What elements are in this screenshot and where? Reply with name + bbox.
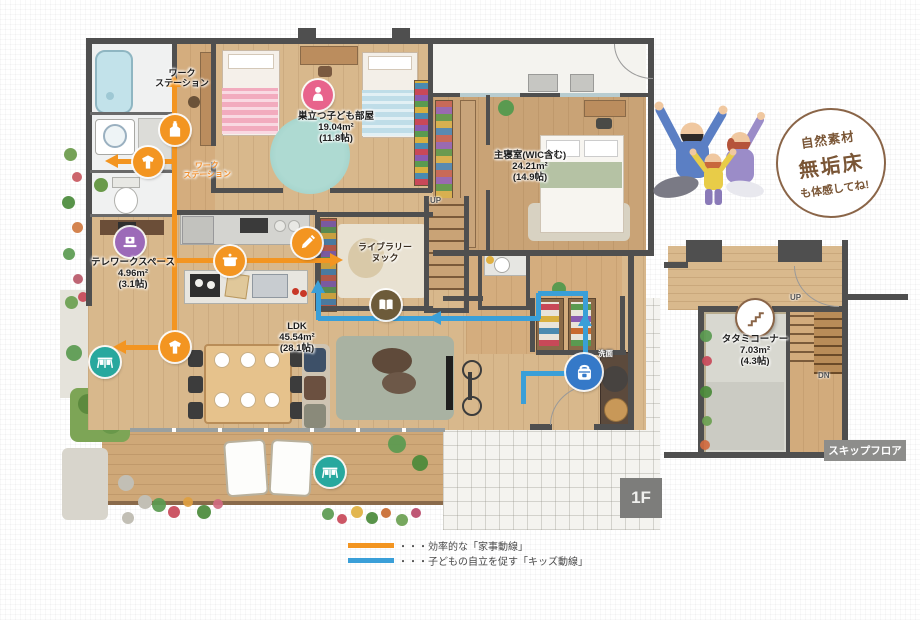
- stairs-up-label: UP: [430, 196, 441, 205]
- master-plant: [498, 100, 514, 116]
- workstation-label: ワーク ステーション: [142, 68, 222, 88]
- flower: [366, 512, 378, 524]
- legend-house-label: ・・・効率的な「家事動線」: [398, 538, 528, 553]
- kids-chair: [318, 66, 332, 77]
- skip-wall-stub: [664, 452, 700, 458]
- skip-plant: [700, 440, 710, 450]
- wall-wic: [486, 190, 490, 252]
- child-leg: [705, 189, 713, 205]
- skip-wall-top: [698, 306, 738, 312]
- skip-floor-tag: スキップフロア: [824, 440, 906, 461]
- drying-table-icon: [90, 347, 120, 377]
- cubby-items: [539, 302, 559, 346]
- plant: [72, 222, 83, 233]
- plant: [66, 345, 82, 361]
- workstation-label-line1: ワーク: [142, 68, 222, 78]
- plant: [63, 248, 75, 260]
- wall-kids-east: [428, 44, 433, 192]
- floorplan-canvas: ワーク ステーション ワーク ステーション 巣立つ子ども部屋 19.04m² (…: [0, 0, 920, 620]
- dad-arm: [660, 110, 680, 148]
- telework-label: テレワークスペース 4.96m² (3.1帖): [83, 257, 183, 290]
- kids-route-seg: [538, 291, 588, 296]
- telework-jo: (3.1帖): [83, 279, 183, 290]
- plant: [64, 148, 77, 161]
- tatami-corner-name: タタミコーナー: [705, 334, 805, 345]
- pebble-bed: [62, 448, 108, 520]
- kids-route-arrow-up: [578, 313, 592, 326]
- child-icon: [303, 80, 333, 110]
- wall-tv: [446, 356, 453, 410]
- skip-wall-stub: [686, 240, 722, 262]
- plant: [72, 172, 82, 182]
- sliding-door-line: [130, 428, 445, 432]
- wall-bottom-right: [530, 424, 552, 430]
- plant: [62, 196, 75, 209]
- stepping-stone: [118, 475, 134, 491]
- master-chair: [596, 118, 612, 129]
- kids-bed-duvet-pink: [222, 88, 278, 134]
- stepping-stone: [138, 495, 152, 509]
- wall-washbasin: [478, 250, 482, 310]
- legend-kids-swatch: [348, 558, 394, 563]
- kids-room-label: 巣立つ子ども部屋 19.04m² (11.8帖): [286, 111, 386, 144]
- skip-up-label: UP: [790, 293, 801, 302]
- wall-cubby: [530, 298, 535, 352]
- wall-cubby: [620, 296, 625, 354]
- flower: [183, 497, 193, 507]
- kids-room-area: 19.04m²: [286, 122, 386, 133]
- sofa-cushion: [304, 404, 326, 428]
- dining-chair: [188, 376, 203, 393]
- coffee-table: [372, 348, 412, 374]
- skip-tatami-mat: [706, 382, 784, 450]
- school-bag-icon: [566, 354, 602, 390]
- ac-unit: [570, 74, 594, 92]
- master-desk: [584, 100, 626, 117]
- bicycle-frame: [468, 372, 472, 400]
- bicycle-wheel: [462, 360, 482, 380]
- house-route-arrow-left: [105, 154, 118, 168]
- skip-plant: [700, 386, 712, 398]
- wall-stairs: [464, 196, 469, 312]
- telework-area: 4.96m²: [83, 268, 183, 279]
- skip-wall-stub: [664, 262, 688, 268]
- kids-route-arrow-left: [428, 311, 441, 325]
- flower: [322, 508, 334, 520]
- laundry-shirt-icon: [133, 147, 163, 177]
- drying-table-icon: [315, 457, 345, 487]
- kitchen-oven: [240, 218, 268, 233]
- kitchen-sink: [252, 274, 288, 298]
- master-bedroom-area: 24.21m²: [480, 161, 580, 172]
- plant: [73, 274, 83, 284]
- window: [460, 93, 520, 97]
- dining-plate: [240, 392, 256, 408]
- flower: [396, 514, 408, 526]
- library-nook-line1: ライブラリー: [345, 242, 425, 253]
- library-nook-line2: ヌック: [345, 253, 425, 264]
- kids-route-arrow-up: [311, 280, 325, 293]
- washbasin-accent: [486, 256, 494, 264]
- dining-plate: [214, 352, 230, 368]
- kitchen-cooktop: [190, 274, 220, 297]
- wall-hall: [443, 296, 483, 301]
- natural-material-badge: 自然素材 無垢床 も体感してね!: [769, 101, 893, 225]
- dining-plate: [240, 352, 256, 368]
- tatami-corner-label: タタミコーナー 7.03m² (4.3帖): [705, 334, 805, 367]
- legend-house-swatch: [348, 543, 394, 548]
- kids-route-seg: [316, 292, 321, 320]
- deck-plant: [388, 435, 406, 453]
- tatami-corner-jo: (4.3帖): [705, 356, 805, 367]
- kitchen-dish: [274, 220, 286, 232]
- skip-dn-label: DN: [818, 371, 830, 380]
- workstation-label-line2: ステーション: [142, 78, 222, 88]
- telework-name: テレワークスペース: [83, 257, 183, 268]
- family-illustration: [650, 90, 785, 220]
- cooking-pot-icon: [215, 246, 245, 276]
- wall-right-lower: [628, 250, 634, 430]
- dining-chair: [188, 350, 203, 367]
- kids-route-seg: [521, 374, 526, 404]
- coffee-table: [382, 372, 416, 394]
- child-leg: [715, 189, 723, 205]
- bath-drain: [106, 92, 114, 100]
- tomato: [300, 290, 307, 297]
- laptop-icon: [115, 227, 145, 257]
- wall-wic: [486, 95, 490, 145]
- wall-library: [315, 212, 433, 217]
- wall-room-divider: [90, 214, 172, 217]
- skip-wall-left: [698, 306, 704, 458]
- open-book-icon: [371, 290, 401, 320]
- library-nook-label: ライブラリー ヌック: [345, 242, 425, 264]
- entrance-mat: [602, 366, 628, 392]
- lounge-chair: [223, 439, 269, 498]
- flower: [152, 498, 166, 512]
- child-body: [704, 168, 723, 190]
- sofa-cushion: [304, 376, 326, 400]
- ldk-area: 45.54m²: [247, 332, 347, 343]
- toilet-plant: [94, 178, 108, 192]
- lounge-chair: [269, 439, 314, 497]
- washroom-label: 洗面: [598, 348, 613, 359]
- flower: [197, 505, 211, 519]
- floor-tag-1f: 1F: [620, 478, 662, 518]
- plant: [65, 296, 78, 309]
- bathtub: [95, 50, 133, 114]
- skip-plant: [702, 416, 712, 426]
- cooktop-burner: [207, 281, 215, 289]
- window: [560, 93, 620, 97]
- skip-wall-inner: [786, 312, 790, 452]
- wall-washbasin: [478, 306, 530, 310]
- kids-bed-pillow: [368, 56, 412, 70]
- skip-stairs-dn: [814, 312, 842, 374]
- stairs-main: [428, 198, 466, 290]
- flower: [381, 508, 391, 518]
- flower: [168, 506, 180, 518]
- master-bedroom-jo: (14.9帖): [480, 172, 580, 183]
- cutting-board: [224, 273, 249, 300]
- dining-plate: [264, 392, 280, 408]
- wall-kids-bottom: [330, 188, 432, 193]
- deck-plant: [412, 455, 428, 471]
- kids-room-name: 巣立つ子ども部屋: [286, 111, 386, 122]
- detergent-bottle-icon: [160, 115, 190, 145]
- dining-plate: [214, 392, 230, 408]
- workstation-stamp: ワーク ステーション: [172, 160, 243, 180]
- ac-unit: [528, 74, 558, 92]
- flower: [351, 506, 363, 518]
- ldk-name: LDK: [247, 321, 347, 332]
- washbasin-sink: [494, 257, 510, 273]
- cooktop-burner: [195, 279, 203, 287]
- kitchen-fridge: [182, 216, 214, 244]
- dining-plate: [264, 352, 280, 368]
- laundry-shirt-icon: [160, 332, 190, 362]
- washer-door: [103, 124, 127, 148]
- entrance-basket: [604, 398, 628, 422]
- ldk-label: LDK 45.54m² (28.1帖): [247, 321, 347, 354]
- skip-wall-stub: [778, 240, 822, 262]
- dining-chair: [188, 402, 203, 419]
- wall-kitchen-back: [177, 210, 317, 215]
- ldk-jo: (28.1帖): [247, 343, 347, 354]
- kids-desk: [300, 46, 358, 65]
- flower: [411, 508, 421, 518]
- skip-wall-stub: [848, 294, 908, 300]
- wall-kids-bottom: [211, 188, 283, 193]
- stepping-stone: [122, 512, 134, 524]
- skip-stairs-icon: [735, 298, 775, 338]
- toilet-bowl: [114, 187, 138, 214]
- kids-bed-pillow: [228, 54, 274, 69]
- flower: [213, 499, 223, 509]
- tomato: [292, 288, 299, 295]
- pencil-icon: [292, 228, 322, 258]
- dad-body: [676, 141, 709, 178]
- vent-stub: [392, 28, 410, 40]
- workstation-stool: [188, 96, 200, 108]
- vent-stub: [298, 28, 316, 40]
- wall-bottom-right: [594, 424, 634, 430]
- master-bedroom-label: 主寝室(WIC含む) 24.21m² (14.9帖): [480, 150, 580, 183]
- tatami-corner-area: 7.03m²: [705, 345, 805, 356]
- kids-room-jo: (11.8帖): [286, 133, 386, 144]
- legend-kids-label: ・・・子どもの自立を促す「キッズ動線」: [398, 553, 588, 568]
- master-bedroom-name: 主寝室(WIC含む): [480, 150, 580, 161]
- wall-room-divider: [90, 112, 172, 115]
- wall-corridor: [211, 38, 216, 146]
- skip-wall-right: [842, 240, 848, 458]
- flower: [337, 514, 347, 524]
- master-pillow: [584, 140, 618, 157]
- bicycle-wheel: [462, 396, 482, 416]
- house-route-arrow-right: [330, 253, 343, 267]
